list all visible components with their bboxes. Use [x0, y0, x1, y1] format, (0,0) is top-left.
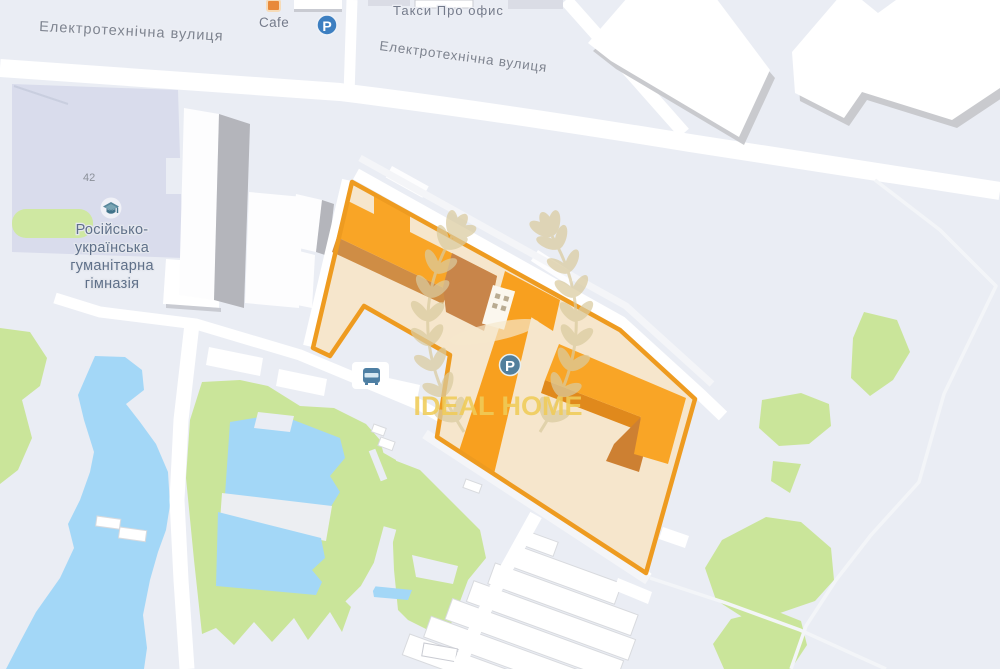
svg-text:IDEAL HOME: IDEAL HOME — [413, 391, 582, 421]
svg-text:P: P — [322, 18, 331, 34]
svg-text:P: P — [505, 358, 515, 375]
svg-text:гуманітарна: гуманітарна — [70, 258, 154, 274]
svg-text:Cafe: Cafe — [259, 15, 289, 30]
svg-text:гімназія: гімназія — [85, 276, 140, 292]
svg-text:42: 42 — [83, 172, 95, 184]
svg-text:Такси Про офис: Такси Про офис — [393, 3, 504, 18]
svg-text:Російсько-: Російсько- — [76, 222, 149, 238]
svg-text:українська: українська — [75, 240, 150, 256]
